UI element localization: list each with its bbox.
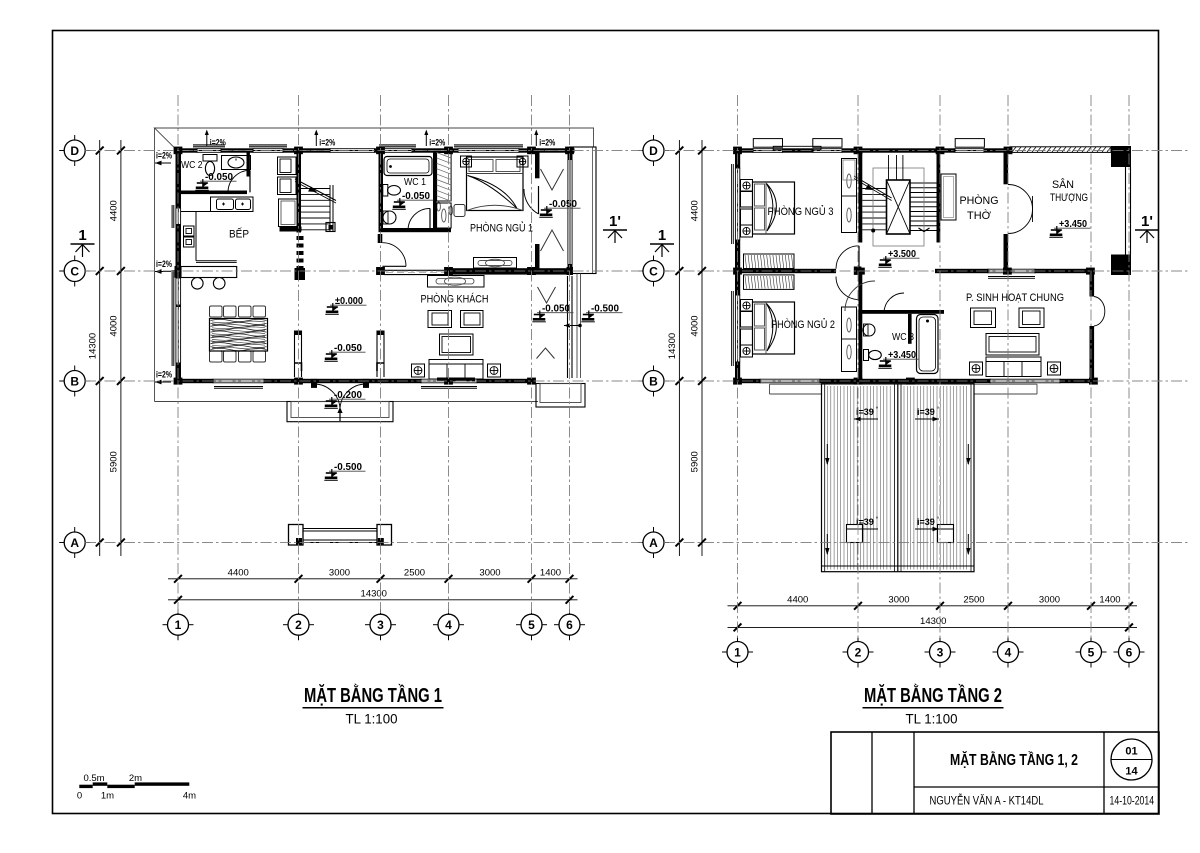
svg-text:i=2%: i=2% xyxy=(156,370,172,380)
svg-text:B: B xyxy=(70,374,79,388)
svg-text:D: D xyxy=(649,144,658,158)
svg-text:3000: 3000 xyxy=(329,567,350,578)
svg-text:4: 4 xyxy=(445,618,452,632)
svg-text:6: 6 xyxy=(566,618,573,632)
svg-text:5: 5 xyxy=(528,618,535,632)
svg-text:4000: 4000 xyxy=(690,315,701,336)
svg-text:4: 4 xyxy=(1005,645,1012,659)
svg-text:14300: 14300 xyxy=(361,589,387,600)
svg-text:i=39: i=39 xyxy=(917,407,935,417)
svg-text:MẶT BẰNG TẦNG 2: MẶT BẰNG TẦNG 2 xyxy=(864,683,1002,707)
svg-text:A: A xyxy=(70,536,79,550)
svg-text:14: 14 xyxy=(1125,766,1138,778)
svg-text:1m: 1m xyxy=(101,791,114,802)
svg-text:°: ° xyxy=(876,406,879,414)
svg-text:1: 1 xyxy=(175,618,182,632)
svg-text:PHÒNG KHÁCH: PHÒNG KHÁCH xyxy=(421,293,489,306)
svg-text:0.5m: 0.5m xyxy=(83,773,104,784)
svg-text:1: 1 xyxy=(734,645,741,659)
svg-text:i=2%: i=2% xyxy=(210,138,226,148)
svg-text:C: C xyxy=(649,264,658,278)
svg-text:THỜ: THỜ xyxy=(967,209,992,222)
svg-text:1': 1' xyxy=(609,213,621,230)
svg-text:PHÒNG NGỦ 2: PHÒNG NGỦ 2 xyxy=(771,318,835,331)
svg-text:3000: 3000 xyxy=(1039,594,1060,605)
svg-text:WC 1: WC 1 xyxy=(404,177,426,188)
svg-text:i=39: i=39 xyxy=(856,407,874,417)
svg-text:2500: 2500 xyxy=(963,594,984,605)
svg-text:3000: 3000 xyxy=(888,594,909,605)
svg-text:2500: 2500 xyxy=(404,567,425,578)
svg-text:PHÒNG NGỦ 3: PHÒNG NGỦ 3 xyxy=(768,205,834,218)
svg-text:2: 2 xyxy=(295,618,302,632)
svg-text:5900: 5900 xyxy=(109,451,120,472)
svg-text:SÂN: SÂN xyxy=(1052,178,1074,191)
svg-text:4400: 4400 xyxy=(690,200,701,221)
svg-text:WC 3: WC 3 xyxy=(892,332,914,343)
svg-text:2: 2 xyxy=(855,645,862,659)
svg-text:1: 1 xyxy=(658,227,666,244)
svg-text:B: B xyxy=(649,374,658,388)
svg-text:01: 01 xyxy=(1125,746,1137,758)
svg-text:14300: 14300 xyxy=(920,616,946,627)
svg-text:3000: 3000 xyxy=(479,567,500,578)
svg-text:°: ° xyxy=(937,406,940,414)
svg-text:i=2%: i=2% xyxy=(156,151,172,161)
svg-text:°: ° xyxy=(937,516,940,524)
svg-text:2m: 2m xyxy=(129,773,142,784)
svg-text:A: A xyxy=(649,536,658,550)
svg-text:C: C xyxy=(70,264,79,278)
svg-text:PHÒNG: PHÒNG xyxy=(960,194,999,207)
svg-text:5: 5 xyxy=(1088,645,1095,659)
svg-text:BẾP: BẾP xyxy=(229,228,249,241)
svg-text:i=2%: i=2% xyxy=(539,138,555,148)
svg-text:MẶT BẰNG TẦNG 1, 2: MẶT BẰNG TẦNG 1, 2 xyxy=(950,750,1078,769)
svg-text:P. SINH HOẠT CHUNG: P. SINH HOẠT CHUNG xyxy=(966,292,1064,304)
svg-text:6: 6 xyxy=(1126,645,1133,659)
svg-text:THƯỢNG: THƯỢNG xyxy=(1050,192,1088,204)
svg-text:0: 0 xyxy=(77,791,82,802)
svg-text:TL 1:100: TL 1:100 xyxy=(906,712,958,727)
svg-text:14300: 14300 xyxy=(667,333,678,359)
svg-text:WC 2: WC 2 xyxy=(181,160,203,171)
svg-text:i=39: i=39 xyxy=(917,517,935,527)
svg-text:1': 1' xyxy=(1141,213,1153,230)
svg-text:3: 3 xyxy=(377,618,384,632)
svg-text:4400: 4400 xyxy=(228,567,249,578)
svg-text:1400: 1400 xyxy=(540,567,561,578)
svg-text:1400: 1400 xyxy=(1099,594,1120,605)
svg-text:14300: 14300 xyxy=(88,333,99,359)
svg-text:i=2%: i=2% xyxy=(429,138,445,148)
svg-text:MẶT BẰNG TẦNG 1: MẶT BẰNG TẦNG 1 xyxy=(304,683,442,707)
svg-text:1: 1 xyxy=(78,227,86,244)
svg-text:PHÒNG NGỦ 1: PHÒNG NGỦ 1 xyxy=(470,222,533,235)
svg-text:3: 3 xyxy=(937,645,944,659)
svg-text:i=2%: i=2% xyxy=(319,138,335,148)
svg-text:TL 1:100: TL 1:100 xyxy=(346,712,398,727)
svg-text:i=2%: i=2% xyxy=(156,259,172,269)
svg-text:NGUYỄN VĂN A - KT14DL: NGUYỄN VĂN A - KT14DL xyxy=(930,795,1044,808)
svg-text:5900: 5900 xyxy=(690,451,701,472)
svg-text:°: ° xyxy=(876,516,879,524)
svg-text:4400: 4400 xyxy=(109,200,120,221)
svg-text:4400: 4400 xyxy=(787,594,808,605)
svg-text:4m: 4m xyxy=(183,791,196,802)
svg-text:D: D xyxy=(70,144,79,158)
svg-text:14-10-2014: 14-10-2014 xyxy=(1110,796,1155,808)
svg-text:4000: 4000 xyxy=(109,315,120,336)
